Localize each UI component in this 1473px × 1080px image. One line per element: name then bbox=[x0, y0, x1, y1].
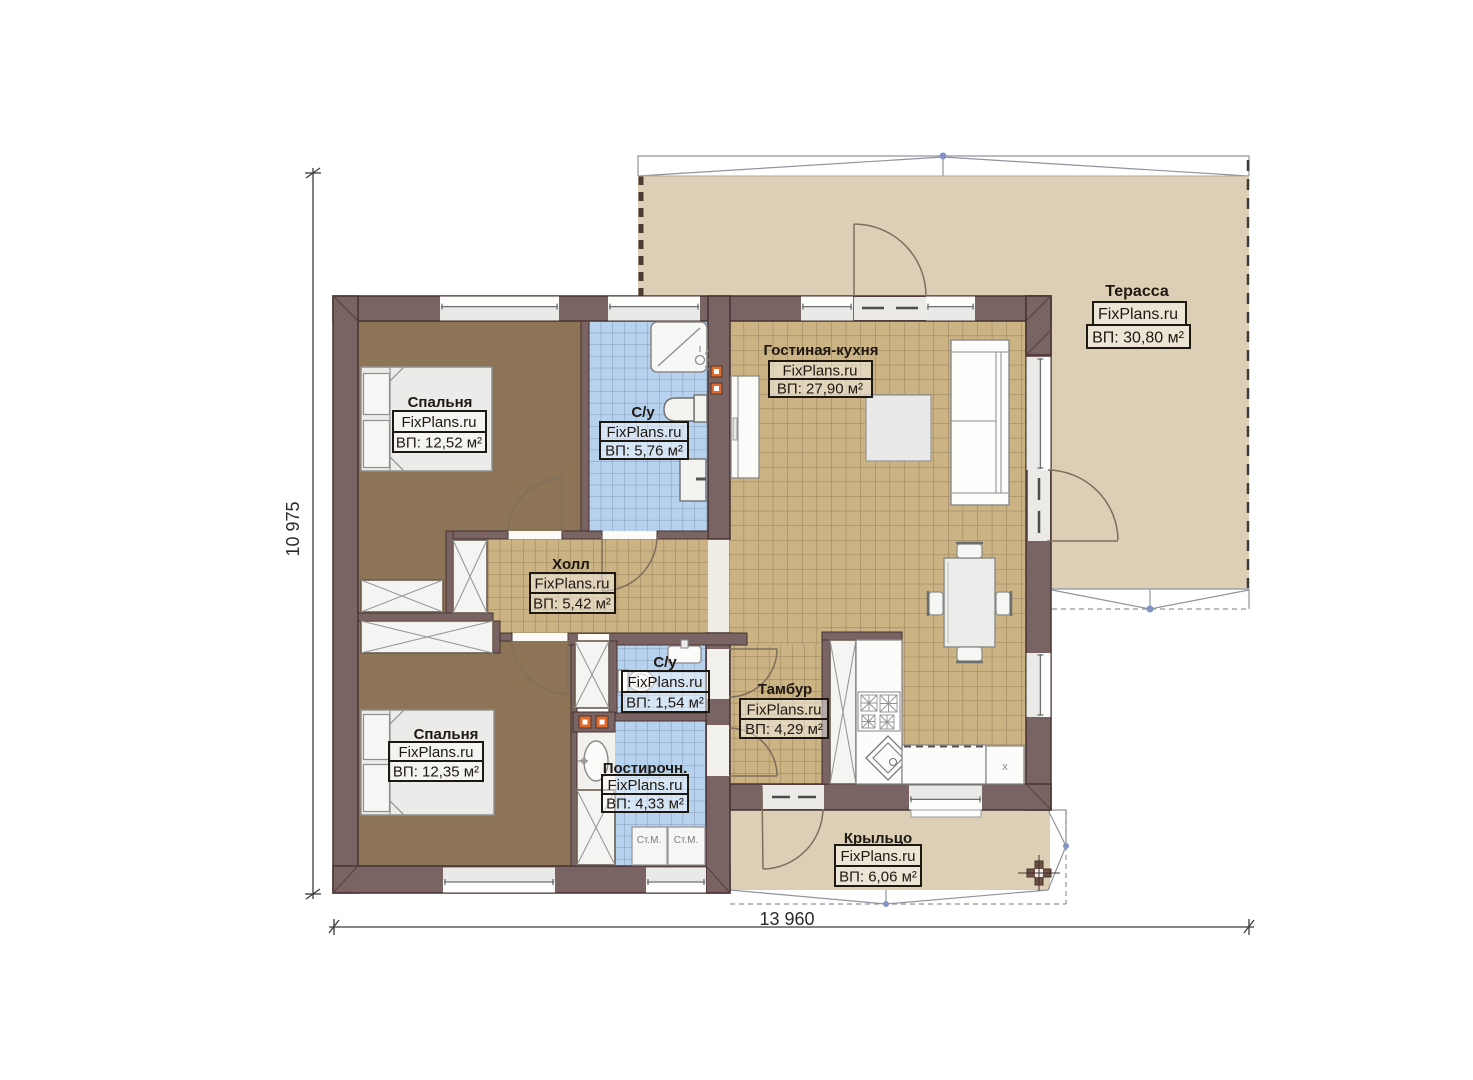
svg-text:ВП: 27,90 м²: ВП: 27,90 м² bbox=[777, 381, 863, 398]
svg-text:ВП: 4,33 м²: ВП: 4,33 м² bbox=[606, 796, 684, 813]
svg-text:ВП: 6,06 м²: ВП: 6,06 м² bbox=[839, 869, 917, 886]
svg-text:Спальня: Спальня bbox=[414, 726, 479, 743]
svg-text:FixPlans.ru: FixPlans.ru bbox=[1098, 306, 1178, 323]
svg-text:x: x bbox=[1002, 761, 1008, 773]
svg-text:Терасса: Терасса bbox=[1105, 283, 1169, 300]
svg-text:ВП: 1,54 м²: ВП: 1,54 м² bbox=[626, 695, 704, 712]
svg-text:FixPlans.ru: FixPlans.ru bbox=[746, 702, 821, 719]
svg-text:Тамбур: Тамбур bbox=[758, 681, 812, 698]
svg-text:ВП: 12,52 м²: ВП: 12,52 м² bbox=[396, 435, 482, 452]
svg-text:FixPlans.ru: FixPlans.ru bbox=[840, 848, 915, 865]
svg-text:10 975: 10 975 bbox=[283, 501, 303, 556]
svg-text:FixPlans.ru: FixPlans.ru bbox=[401, 414, 476, 431]
svg-text:ВП: 5,76 м²: ВП: 5,76 м² bbox=[605, 443, 683, 460]
svg-text:Холл: Холл bbox=[552, 556, 590, 573]
svg-text:ВП: 4,29 м²: ВП: 4,29 м² bbox=[745, 721, 823, 738]
svg-text:Гостиная-кухня: Гостиная-кухня bbox=[764, 342, 879, 359]
svg-text:FixPlans.ru: FixPlans.ru bbox=[398, 744, 473, 761]
svg-text:Ст.М.: Ст.М. bbox=[674, 835, 699, 846]
svg-text:FixPlans.ru: FixPlans.ru bbox=[607, 777, 682, 794]
svg-text:С/у: С/у bbox=[653, 654, 677, 671]
svg-text:FixPlans.ru: FixPlans.ru bbox=[606, 424, 681, 441]
svg-text:FixPlans.ru: FixPlans.ru bbox=[782, 363, 857, 380]
svg-text:ВП: 5,42 м²: ВП: 5,42 м² bbox=[533, 596, 611, 613]
svg-text:FixPlans.ru: FixPlans.ru bbox=[534, 576, 609, 593]
svg-text:ВП: 30,80 м²: ВП: 30,80 м² bbox=[1092, 330, 1185, 347]
svg-text:Ст.М.: Ст.М. bbox=[637, 835, 662, 846]
svg-text:13 960: 13 960 bbox=[759, 909, 814, 929]
svg-text:ВП: 12,35 м²: ВП: 12,35 м² bbox=[393, 764, 479, 781]
svg-text:С/у: С/у bbox=[631, 404, 655, 421]
svg-text:FixPlans.ru: FixPlans.ru bbox=[627, 674, 702, 691]
svg-text:Спальня: Спальня bbox=[408, 394, 473, 411]
